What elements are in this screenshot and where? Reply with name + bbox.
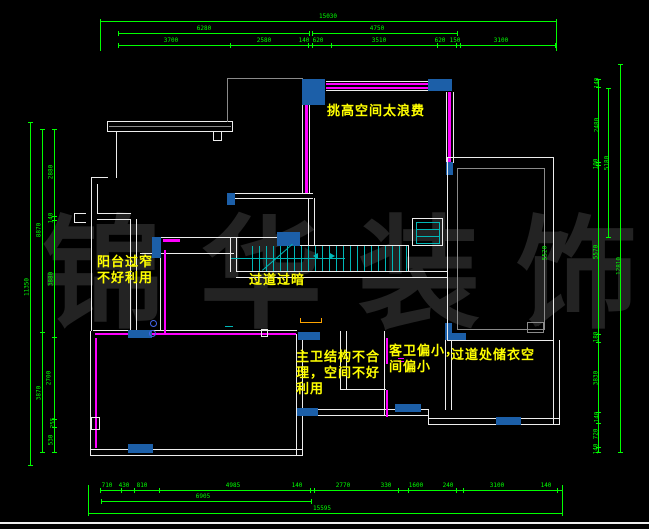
vertical-dimension-label: 530 xyxy=(48,435,55,446)
dimension-label: 3100 xyxy=(494,37,508,44)
vertical-dimension-label: 140 xyxy=(593,444,600,455)
dimension-label: 140 xyxy=(541,482,552,489)
dimension-label: 3100 xyxy=(490,482,504,489)
vertical-dimension-label: 5520 xyxy=(542,246,549,260)
dimension-label: 140 xyxy=(292,482,303,489)
dimension-label: 4985 xyxy=(226,482,240,489)
dimension-label: 240 xyxy=(443,482,454,489)
vertical-dimension-label: 3880 xyxy=(48,272,55,286)
dimension-label: 15595 xyxy=(313,505,331,512)
vertical-dimension-label: 5180 xyxy=(604,156,611,170)
vertical-dimension-label: 11350 xyxy=(24,278,31,296)
vertical-dimension-label: 2700 xyxy=(46,371,53,385)
vertical-dimension-label: 8870 xyxy=(36,223,43,237)
dimension-label: 2580 xyxy=(257,37,271,44)
vertical-dimension-label: 3830 xyxy=(593,371,600,385)
dimension-label: 620 xyxy=(435,37,446,44)
dimension-label: 330 xyxy=(381,482,392,489)
dimension-label: 1600 xyxy=(409,482,423,489)
dimension-label: 430 xyxy=(119,482,130,489)
vertical-dimension-label: 140 xyxy=(594,412,601,423)
dimension-label: 2770 xyxy=(336,482,350,489)
dimension-label: 3510 xyxy=(372,37,386,44)
dimension-label: 3700 xyxy=(164,37,178,44)
dimension-label: 620 xyxy=(313,37,324,44)
vertical-dimension-label: 255 xyxy=(50,418,57,429)
dimensions-layer: 1503062804750370025801406203510620150310… xyxy=(0,0,649,529)
vertical-dimension-label: 140 xyxy=(594,78,601,89)
vertical-dimension-label: 100 xyxy=(593,159,600,170)
dimension-label: 810 xyxy=(137,482,148,489)
dimension-label: 15030 xyxy=(319,13,337,20)
vertical-dimension-label: 3870 xyxy=(36,386,43,400)
dimension-label: 4750 xyxy=(370,25,384,32)
vertical-dimension-label: 2480 xyxy=(594,118,601,132)
vertical-dimension-label: 5570 xyxy=(593,245,600,259)
vertical-dimension-label: 2880 xyxy=(48,165,55,179)
dimension-label: 710 xyxy=(102,482,113,489)
dimension-label: 6905 xyxy=(196,493,210,500)
dimension-label: 140 xyxy=(299,37,310,44)
floorplan-viewport: 锦华装饰 挑高空间太浪费阳台过窄不好利用过道过暗主卫结构不合理，空间不好利用客卫… xyxy=(0,0,649,529)
vertical-dimension-label: 12810 xyxy=(616,257,623,275)
dimension-label: 6280 xyxy=(197,25,211,32)
vertical-dimension-label: 720 xyxy=(593,429,600,440)
vertical-dimension-label: 180 xyxy=(593,332,600,343)
vertical-dimension-label: 140 xyxy=(48,213,55,224)
dimension-label: 150 xyxy=(450,37,461,44)
